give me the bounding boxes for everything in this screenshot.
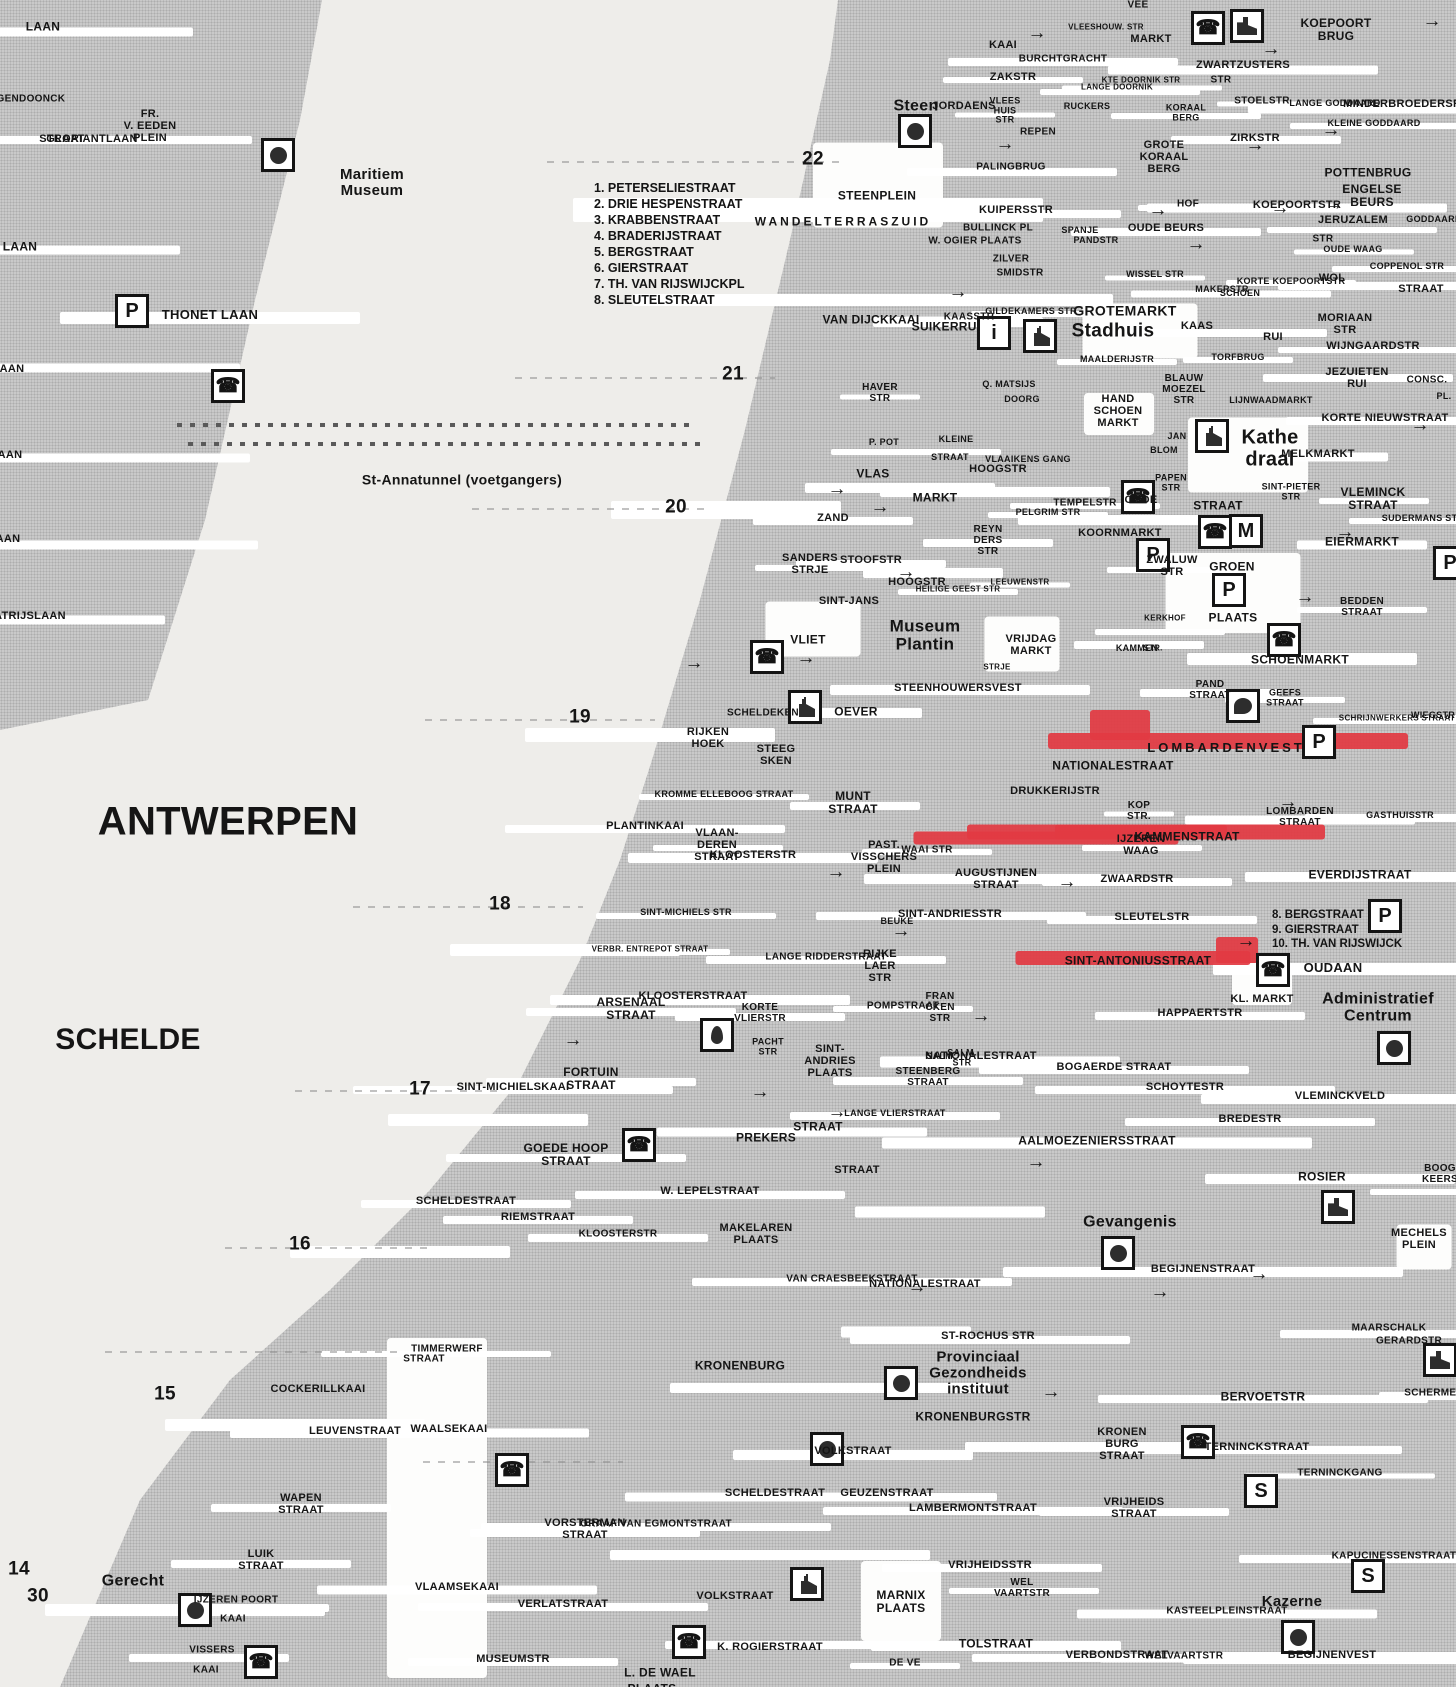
street-label: SINT-JANS [819,596,879,608]
street-label: BURCHTGRACHT [1019,55,1108,66]
street-label: GERARDSTR [1376,1337,1442,1348]
building-glyph [1237,17,1257,35]
one-way-arrow: → [1411,416,1430,435]
street-road [0,364,240,373]
grid-number: 30 [27,1587,49,1608]
S-letter-glyph: S [1254,1481,1267,1501]
phone-icon: ☎ [211,369,245,403]
street-label: KAAI [193,1666,219,1677]
M-icon: M [1229,514,1263,548]
tunnel-dotted-line [177,423,697,427]
street-label: HOOGSTR [969,464,1027,476]
one-way-arrow: → [1149,201,1168,220]
street-label: PANDSTR [1074,236,1119,246]
grid-number: 14 [8,1560,30,1581]
street-label: AALMOEZENIERSSTRAAT [1018,1135,1175,1148]
street-label: Q. MATSIJS [982,380,1035,390]
building-glyph [1328,1198,1348,1216]
one-way-arrow: → [1271,199,1290,218]
one-way-arrow: → [828,480,847,499]
P-icon: P [1302,725,1336,759]
street-label: MARNIX PLAATS [876,1589,925,1615]
street-label: JAN [1168,432,1187,442]
street-label: MARKT [913,492,958,505]
street-label: KORAAL BERG [1166,103,1206,122]
street-label: ROSIER [1298,1171,1346,1184]
street-label: LEUVENSTRAAT [309,1426,401,1438]
street-label: Maritiem Museum [340,167,404,199]
legend-numbered-streets-top: 1. PETERSELIESTRAAT 2. DRIE HESPENSTRAAT… [594,180,744,308]
phone-glyph: ☎ [1203,522,1228,542]
phone-glyph: ☎ [1196,18,1221,38]
street-label: GODDAARD [1406,215,1456,225]
one-way-arrow: → [897,563,916,582]
street-label: ENGELSE BEURS [1342,183,1401,209]
street-label: LUIK STRAAT [238,1549,284,1573]
street-label: TERNINCKGANG [1297,1469,1382,1480]
street-label: BEGIJNENSTRAAT [1151,1264,1255,1276]
S-icon: S [1244,1474,1278,1508]
street-label: FR. V. EEDEN PLEIN [124,109,177,145]
street-label: ZAND [817,513,849,525]
street-label: WIJNGAARDSTR [1326,341,1419,353]
street-label: WIEGSTR [1411,711,1455,721]
street-label: PAPEN STR [1155,473,1187,492]
street-label: ZWARTZUSTERS [1196,60,1290,72]
phone-glyph: ☎ [627,1135,652,1155]
street-label: GROTE KORAAL BERG [1140,140,1189,176]
street-label: RIJKEN HOEK [687,727,729,751]
one-way-arrow: → [1058,873,1077,892]
street-label: GROEN [1209,561,1255,574]
street-label: DE VE [889,1659,921,1670]
street-label: Provinciaal Gezondheids instituut [929,1350,1026,1399]
street-label: SCHERMERSSTR [1404,1389,1456,1400]
one-way-arrow: → [1151,1283,1170,1302]
street-label: VEE [1128,1,1149,12]
street-label: MUSEUMSTR [476,1654,550,1666]
one-way-arrow: → [996,135,1015,154]
building-icon [1423,1343,1456,1377]
street-label: SUDERMANS STR [1382,514,1456,524]
street-label: KORTE VLIERSTR [734,1003,786,1025]
P-icon: P [115,294,149,328]
street-label: BLOM [1150,446,1178,456]
map-grid-line [225,1247,435,1249]
street-label: GEUZENSTRAAT [840,1488,933,1500]
street-label: RUCKERS [1064,102,1111,112]
street-label: KOEPOORT BRUG [1300,17,1371,43]
street-label: STEENBERG STRAAT [896,1067,961,1089]
dot-icon [898,114,932,148]
one-way-arrow: → [685,654,704,673]
street-label: VLEESHOUW. STR [1068,24,1144,33]
street-label: HAND SCHOEN MARKT [1094,394,1143,430]
building-glyph [1430,1351,1450,1369]
street-label: ZWALUW STR [1146,555,1197,579]
one-way-arrow: → [1027,1153,1046,1172]
street-road [855,1207,1045,1218]
street-road [831,449,1001,455]
street-label: PREKERS [736,1132,796,1145]
street-label: JEZUIETEN RUI [1325,367,1388,391]
street-label: GOEDE HOOP STRAAT [523,1142,608,1168]
street-label: LOMBARDEN STRAAT [1266,807,1334,829]
street-label: POTTENBRUG [1325,167,1412,180]
street-label: STRAAT [403,1355,445,1366]
building-icon [1321,1190,1355,1224]
street-label: SINT-ANDRIESSTR [898,909,1002,921]
street-label: VLAAMSEKAAI [415,1582,499,1594]
street-label: SCHOYTESTR [1146,1082,1224,1094]
street-road [965,1442,1205,1452]
one-way-arrow: → [751,1083,770,1102]
street-label: SCHELDEKEN [727,709,799,720]
street-label: KUIPERSSTR [979,205,1053,217]
street-label: PELGRIM STR [1016,508,1081,518]
street-label: MAKELAREN PLAATS [720,1223,793,1247]
street-label: Gevangenis [1083,1213,1177,1230]
street-label: BLAUW MOEZEL STR [1162,374,1205,406]
street-label: KLEINE GODDAARD [1327,119,1420,129]
street-label: MUNT STRAAT [828,790,878,816]
street-label: KROMME ELLEBOOG STRAAT [655,790,794,800]
street-label: MAARSCHALK [1352,1324,1427,1335]
street-label: STOOFSTR [840,555,902,567]
grid-number: 15 [154,1385,176,1406]
one-way-arrow: → [1250,1265,1269,1284]
street-label: W. OGIER PLAATS [928,237,1021,248]
street-road [1137,329,1327,337]
street-road [1370,1189,1456,1195]
street-label: TORFBRUG [1211,353,1264,363]
memorial-flame-glyph [711,1026,723,1044]
one-way-arrow: → [1028,24,1047,43]
building-icon [1230,9,1264,43]
phone-glyph: ☎ [1272,630,1297,650]
street-label: OEVER [834,706,878,719]
street-label: VOLKSTRAAT [814,1446,891,1458]
street-label: KOORNMARKT [1078,528,1162,540]
street-label: LAAN [3,241,38,254]
P-letter-glyph: P [1222,580,1235,600]
street-label: PLAATS [1209,612,1258,625]
street-label: PL. [1437,392,1452,402]
S-icon: S [1351,1559,1385,1593]
street-label: VLAAIKENS GANG [985,455,1071,465]
street-label: SINT-MICHIELSKAAI [457,1082,570,1094]
street-label: LOMBARDENVEST [1147,741,1304,755]
one-way-arrow: → [1296,588,1315,607]
street-label: KERKHOF [1144,615,1186,624]
street-label: PLANTINKAAI [606,821,684,833]
street-label: LANGE RIDDERSTRAAT [765,953,886,964]
street-label: STRAAT [1193,500,1243,513]
street-label: OUDE WAAG [1323,245,1382,255]
street-label: GILDEKAMERS STR [985,307,1077,317]
street-label: VAN LANGENDOONCK [0,95,65,106]
P-icon: P [1433,546,1456,580]
street-road [0,541,258,550]
S-letter-glyph: S [1361,1566,1374,1586]
street-label: SANDERS STRJE [782,553,838,577]
street-label: AUGUSTIJNEN STRAAT [955,868,1037,892]
street-label: MECHELS PLEIN [1391,1228,1447,1252]
phone-icon: ☎ [672,1625,706,1659]
street-road [525,728,775,742]
street-label: VOLKSTRAAT [696,1591,773,1603]
street-label: HOF [1177,200,1199,211]
street-label: MORIAAN STR [1318,313,1373,337]
dot-icon [1101,1236,1135,1270]
P-letter-glyph: P [1312,732,1325,752]
street-label: KAMMEN [1116,644,1158,654]
map-grid-line [425,719,655,721]
P-letter-glyph: P [1443,553,1456,573]
phone-icon: ☎ [244,1645,278,1679]
post-horn-glyph [1234,698,1252,714]
street-label: MELKMARKT [1281,449,1355,461]
street-label: WISSEL STR [1126,270,1184,280]
street-label: WANDELTERRASZUID [755,216,931,229]
street-label: WAAI STR [901,846,952,857]
street-label: GEEFS STRAAT [1266,688,1304,707]
street-label: BERVOETSTR [1221,1391,1306,1404]
street-label: STR [1211,76,1232,87]
street-label: HAPPAERTSTR [1158,1008,1243,1020]
one-way-arrow: → [892,922,911,941]
open-square [387,1338,487,1678]
grid-number: 20 [665,498,687,519]
street-label: KLOOSTERSTRAAT [638,991,747,1003]
street-label: SCHELDE [55,1024,200,1056]
street-label: VAN CRAESBEEKSTRAAT [786,1275,917,1286]
one-way-arrow: → [1279,793,1298,812]
one-way-arrow: → [1262,40,1281,59]
grid-number: 21 [722,365,744,386]
street-label: SINT-ANTONIUSSTRAAT [1065,955,1212,968]
highlighted-route-segment [1090,710,1150,740]
street-label: L. DE WAEL [624,1667,696,1680]
street-label: BOGAERDE STRAAT [1057,1062,1172,1074]
antwerp-city-map: ☎☎☎☎☎☎☎☎☎☎☎☎PPPPPPMiSS 22212019181716151… [0,0,1456,1687]
street-label: JERUZALEM [1318,215,1388,227]
street-label: BREDESTR [1219,1114,1282,1126]
P-letter-glyph: P [125,301,138,321]
street-label: Gerecht [102,1572,165,1589]
phone-glyph: ☎ [677,1632,702,1652]
one-way-arrow: → [1042,1383,1061,1402]
street-label: LANGE DOORNIK [1081,84,1153,93]
church-glyph [1202,426,1222,446]
street-label: AAN [0,450,22,462]
street-label: VERLATSTRAAT [518,1599,609,1611]
street-label: MAKERSTR [1195,285,1248,295]
street-label: KLEINE [939,435,974,445]
street-label: PAND STRAAT [1189,680,1231,702]
phone-icon: ☎ [750,640,784,674]
street-label: TERNINCKSTRAAT [1205,1442,1310,1454]
street-label: REPEN [1020,128,1056,139]
phone-icon: ☎ [622,1128,656,1162]
street-label: KAAS [1181,321,1213,333]
street-label: RUI [1263,332,1283,344]
street-label: JORDAENS [932,101,996,113]
one-way-arrow: → [972,1007,991,1026]
street-label: ZILVER [993,255,1030,266]
one-way-arrow: → [1423,12,1442,31]
street-label: COCKERILLKAAI [271,1384,366,1396]
street-label: Museum Plantin [890,618,961,655]
street-label: VISSERS [189,1646,234,1657]
grid-number: 16 [289,1235,311,1256]
one-way-arrow: → [1237,932,1256,951]
street-label: SINT-PIETER STR [1262,482,1321,501]
street-label: BOOG KEERS [1422,1164,1456,1186]
street-label: KRONENBURGSTR [915,1411,1030,1424]
phone-glyph: ☎ [249,1652,274,1672]
dot-icon [1377,1031,1411,1065]
i-letter-glyph: i [991,323,997,343]
street-label: LAMBERMONTSTRAAT [909,1503,1037,1515]
street-road [0,454,250,463]
one-way-arrow: → [797,649,816,668]
street-label: BULLINCK PL [963,224,1033,235]
horn-icon [1226,689,1260,723]
street-label: GROTEMARKT [1073,303,1176,318]
one-way-arrow: → [1325,195,1344,214]
street-label: THONET LAAN [162,308,258,322]
street-label: BEGIJNENVEST [1288,1650,1377,1662]
street-label: OUDAAN [1304,961,1363,975]
street-label: KAAI [989,40,1017,52]
phone-glyph: ☎ [755,647,780,667]
street-label: LANGE VLIERSTRAAT [844,1109,945,1119]
street-label: TOLSTRAAT [959,1638,1033,1651]
street-label: STRAAT [834,1165,880,1177]
street-label: VLAS [856,468,889,481]
street-label: HEILIGE GEEST STR [916,586,1001,595]
street-label: FRAN CKEN STR [925,992,955,1024]
phone-icon: ☎ [1256,953,1290,987]
street-label: PACHT STR [752,1037,784,1056]
phone-icon: ☎ [1191,11,1225,45]
one-way-arrow: → [1336,523,1355,542]
street-label: REYN DERS STR [974,525,1003,557]
street-label: WEL VAARTSTR [994,1578,1050,1600]
street-label: MAALDERIJSTR [1080,355,1154,365]
sight-dot-glyph [893,1375,910,1392]
street-label: AAN [0,534,20,546]
street-label: KLOOSTERSTR [710,850,796,862]
street-label: EVERDIJSTRAAT [1308,869,1411,882]
flame-icon [700,1018,734,1052]
phone-icon: ☎ [495,1453,529,1487]
street-label: SCHELDESTRAAT [725,1488,825,1500]
one-way-arrow: → [1246,136,1265,155]
street-label: Administratief Centrum [1322,991,1434,1026]
street-label: St-Annatunnel (voetgangers) [362,472,562,487]
street-label: PLAATS [628,1683,677,1687]
street-label: FORTUIN STRAAT [563,1066,618,1092]
street-label: VAN DIJCKKAAI [822,314,919,327]
street-label: VRIJHEIDS STRAAT [1104,1497,1165,1521]
phone-glyph: ☎ [216,376,241,396]
street-label: RIEMSTRAAT [501,1212,575,1224]
dot-icon [884,1366,918,1400]
street-label: STEENHOUWERSVEST [894,683,1022,695]
street-label: GASTHUISSTR [1366,811,1434,821]
street-label: BEDDEN STRAAT [1340,597,1384,619]
street-label: LAAN [26,21,61,34]
church-glyph [1030,326,1050,346]
street-label: NATIONALESTRAAT [1052,760,1173,773]
street-label: VERBR. ENTREPOT STRAAT [592,946,709,955]
street-label: WAALSEKAAI [411,1424,488,1436]
legend-numbered-streets-mid: 8. BERGSTRAAT 9. GIERSTRAAT 10. TH. VAN … [1272,908,1402,952]
street-label: KLOOSTERSTR [579,1230,658,1241]
street-label: ATRIJSLAAN [0,611,66,623]
one-way-arrow: → [1322,121,1341,140]
sight-dot-glyph [1386,1040,1403,1057]
grid-number: 18 [489,895,511,916]
one-way-arrow: → [949,283,968,302]
street-label: IJZEREN WAAG [1117,834,1166,858]
grid-number: 22 [802,150,824,171]
street-label: VRIJDAG MARKT [1006,634,1057,658]
street-label: VLEMINCK STRAAT [1340,486,1405,512]
grid-number: 17 [409,1080,431,1101]
one-way-arrow: → [827,863,846,882]
church-icon [790,1567,824,1601]
street-label: HAVER STR [862,383,898,405]
street-label: Stadhuis [1072,322,1155,343]
street-label: K. ROGIERSTRAAT [717,1642,823,1654]
map-grid-line [105,1351,405,1353]
street-label: KRONENBURG [695,1360,785,1373]
phone-glyph: ☎ [1261,960,1286,980]
street-label: KRONEN BURG STRAAT [1097,1427,1146,1463]
street-label: KOP STR. [1127,801,1151,823]
street-label: ANTWERPEN [98,800,358,843]
street-label: STEEG SKEN [757,744,796,768]
grid-number: 19 [569,708,591,729]
sight-dot-glyph [270,147,287,164]
one-way-arrow: → [908,1278,927,1297]
street-label: COPPENOL STR [1370,262,1444,272]
one-way-arrow: → [564,1031,583,1050]
street-label: DOORG [1004,395,1040,405]
street-label: KAAI [220,1615,246,1626]
church-icon [1195,419,1229,453]
street-road [1095,629,1225,635]
street-label: VORSTERMAN STRAAT [544,1518,625,1542]
M-letter-glyph: M [1238,521,1255,541]
street-label: CONSC. [1407,376,1448,387]
street-label: SCHELDESTRAAT [416,1196,516,1208]
street-label: ZWAARDSTR [1101,874,1174,886]
street-label: KAPUCINESSENSTRAAT [1332,1552,1456,1563]
sight-dot-glyph [1290,1629,1307,1646]
street-label: NATIONALESTRAAT [925,1051,1037,1063]
street-label: AAN [0,364,24,376]
street-label: WOL [1319,273,1346,285]
street-label: VLIET [790,634,826,647]
street-label: PALINGBRUG [976,163,1045,174]
street-label: WAPEN STRAAT [278,1493,324,1517]
street-label: OUDE [1125,495,1158,507]
street-label: KASTEELPLEINSTRAAT [1166,1607,1287,1618]
